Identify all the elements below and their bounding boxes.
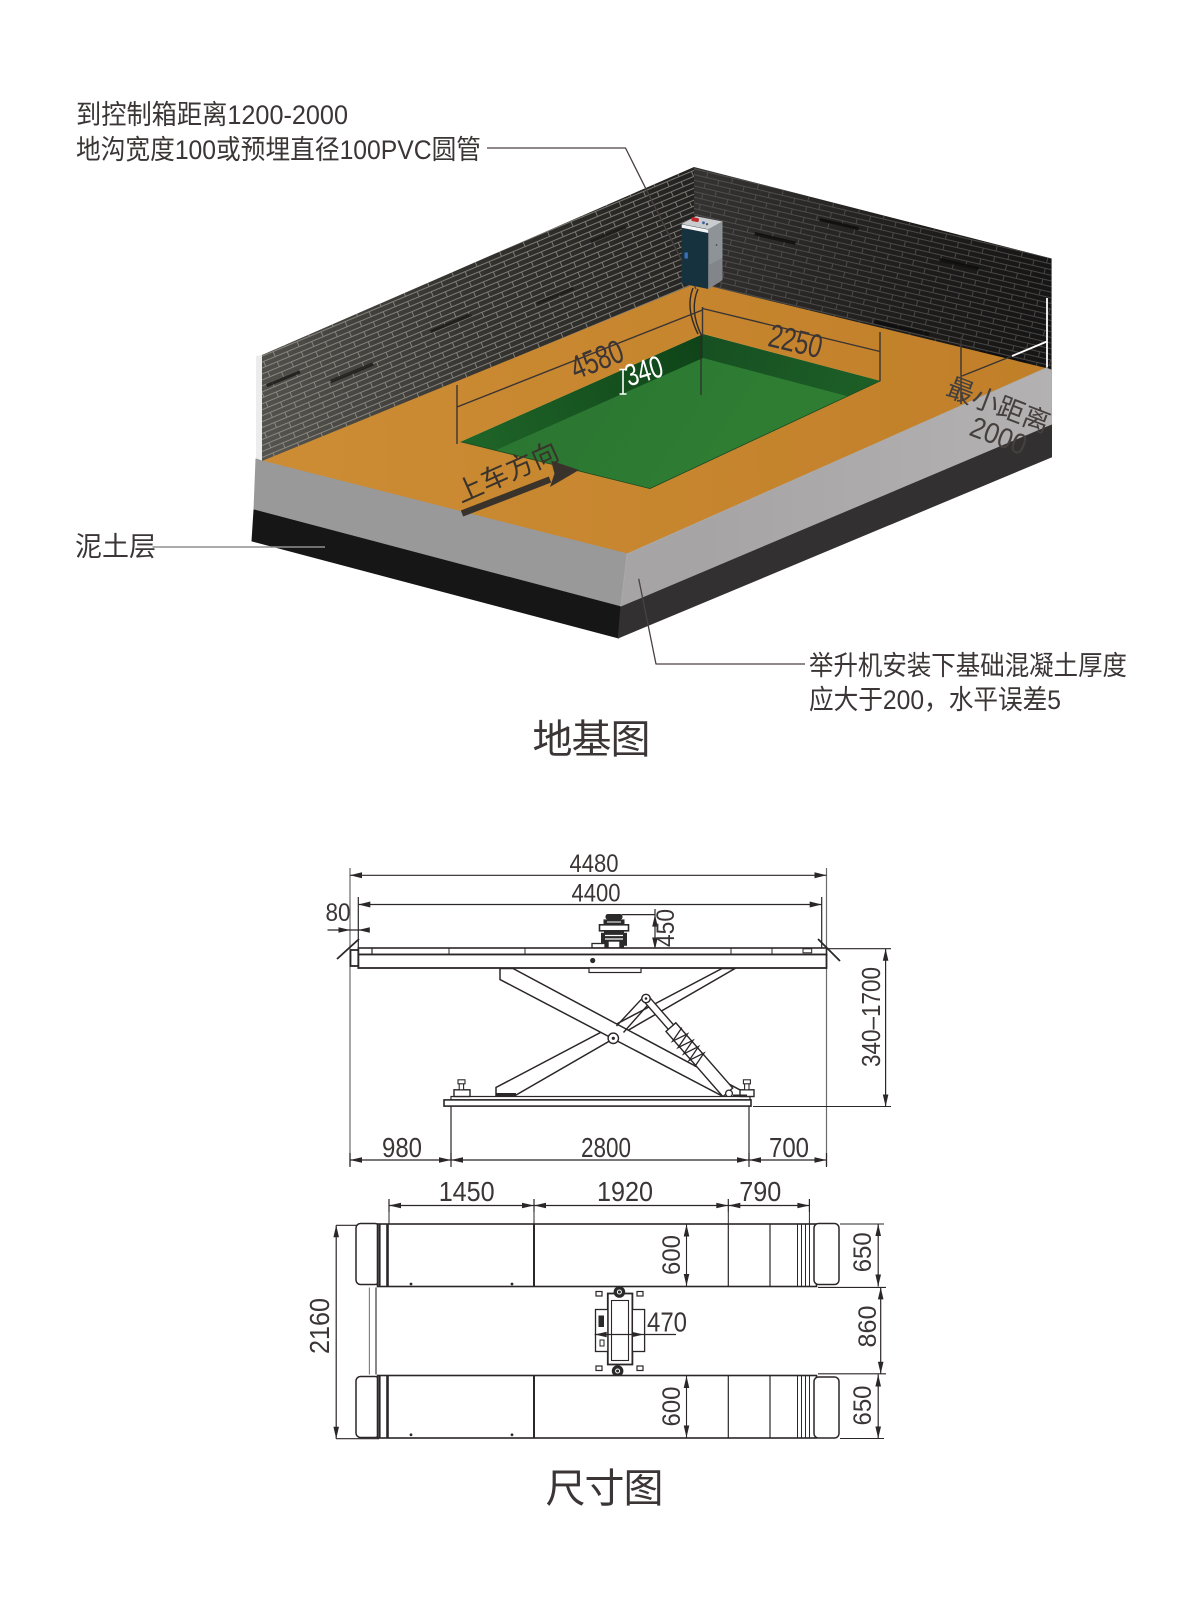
svg-text:80: 80 <box>326 899 351 927</box>
svg-text:地沟宽度100或预埋直径100PVC圆管: 地沟宽度100或预埋直径100PVC圆管 <box>76 135 481 165</box>
svg-text:650: 650 <box>849 1232 877 1272</box>
svg-text:980: 980 <box>382 1132 422 1163</box>
svg-text:1920: 1920 <box>597 1176 653 1207</box>
svg-text:860: 860 <box>854 1306 882 1348</box>
svg-text:340–1700: 340–1700 <box>856 967 886 1067</box>
svg-text:尺寸图: 尺寸图 <box>546 1467 663 1511</box>
svg-text:790: 790 <box>739 1176 781 1207</box>
svg-text:泥土层: 泥土层 <box>75 532 156 562</box>
svg-text:地基图: 地基图 <box>533 718 650 762</box>
svg-text:450: 450 <box>652 909 680 947</box>
svg-text:4400: 4400 <box>572 880 621 908</box>
svg-text:1450: 1450 <box>439 1176 495 1207</box>
svg-text:600: 600 <box>658 1235 686 1275</box>
svg-text:650: 650 <box>849 1386 877 1426</box>
svg-text:600: 600 <box>658 1387 686 1427</box>
svg-text:2800: 2800 <box>581 1132 631 1163</box>
svg-text:应大于200，水平误差5: 应大于200，水平误差5 <box>809 685 1061 715</box>
svg-text:到控制箱距离1200-2000: 到控制箱距离1200-2000 <box>76 100 348 130</box>
svg-text:700: 700 <box>769 1132 809 1163</box>
svg-text:470: 470 <box>647 1307 687 1338</box>
svg-text:举升机安装下基础混凝土厚度: 举升机安装下基础混凝土厚度 <box>809 651 1127 681</box>
svg-text:4480: 4480 <box>570 850 619 878</box>
svg-text:2160: 2160 <box>304 1298 335 1354</box>
